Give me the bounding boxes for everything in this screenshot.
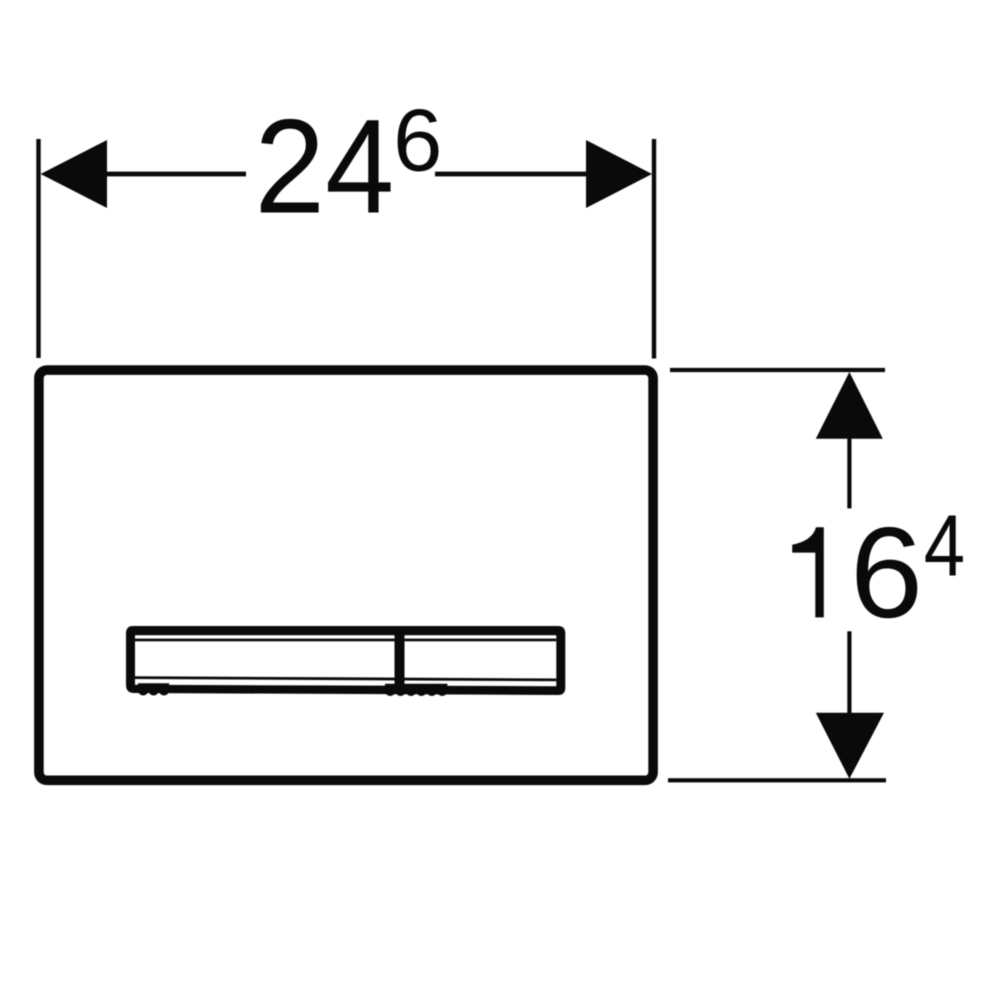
svg-text:2: 2: [255, 93, 326, 242]
svg-text:4: 4: [325, 93, 394, 242]
svg-text:6: 6: [850, 501, 923, 645]
svg-text:4: 4: [924, 498, 965, 595]
svg-text:6: 6: [393, 91, 442, 190]
